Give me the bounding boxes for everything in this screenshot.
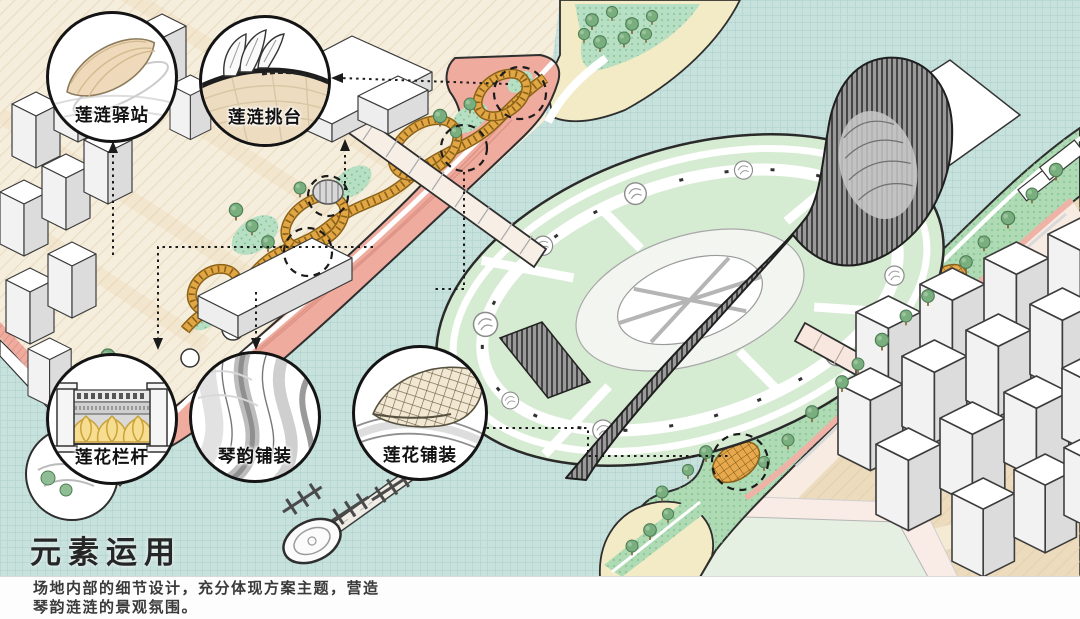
callout-lotus-paving: 莲花铺装 — [352, 345, 488, 481]
shell-dome — [313, 180, 343, 204]
description-line: 琴韵涟涟的景观氛围。 — [33, 598, 380, 617]
section-description: 场地内部的细节设计，充分体现方案主题，营造 琴韵涟涟的景观氛围。 — [33, 579, 380, 617]
callout-label: 莲花铺装 — [355, 442, 485, 467]
callout-label: 莲花栏杆 — [49, 444, 175, 469]
callout-lianlian-cantilever-deck: 莲涟挑台 — [199, 15, 331, 147]
callout-label: 琴韵铺装 — [192, 443, 318, 468]
callout-lianlian-station: 莲涟驿站 — [46, 11, 178, 143]
callout-lotus-railing: 莲花栏杆 — [46, 353, 178, 485]
description-line: 场地内部的细节设计，充分体现方案主题，营造 — [33, 579, 380, 598]
callout-label: 莲涟挑台 — [202, 104, 328, 129]
masterplan-illustration: 莲涟驿站 莲涟挑台 — [0, 0, 1080, 619]
callout-label: 莲涟驿站 — [49, 102, 175, 127]
lotus-motifs — [72, 416, 153, 442]
section-title: 元素运用 — [30, 527, 182, 572]
callout-qin-rhythm-paving: 琴韵铺装 — [189, 351, 321, 483]
